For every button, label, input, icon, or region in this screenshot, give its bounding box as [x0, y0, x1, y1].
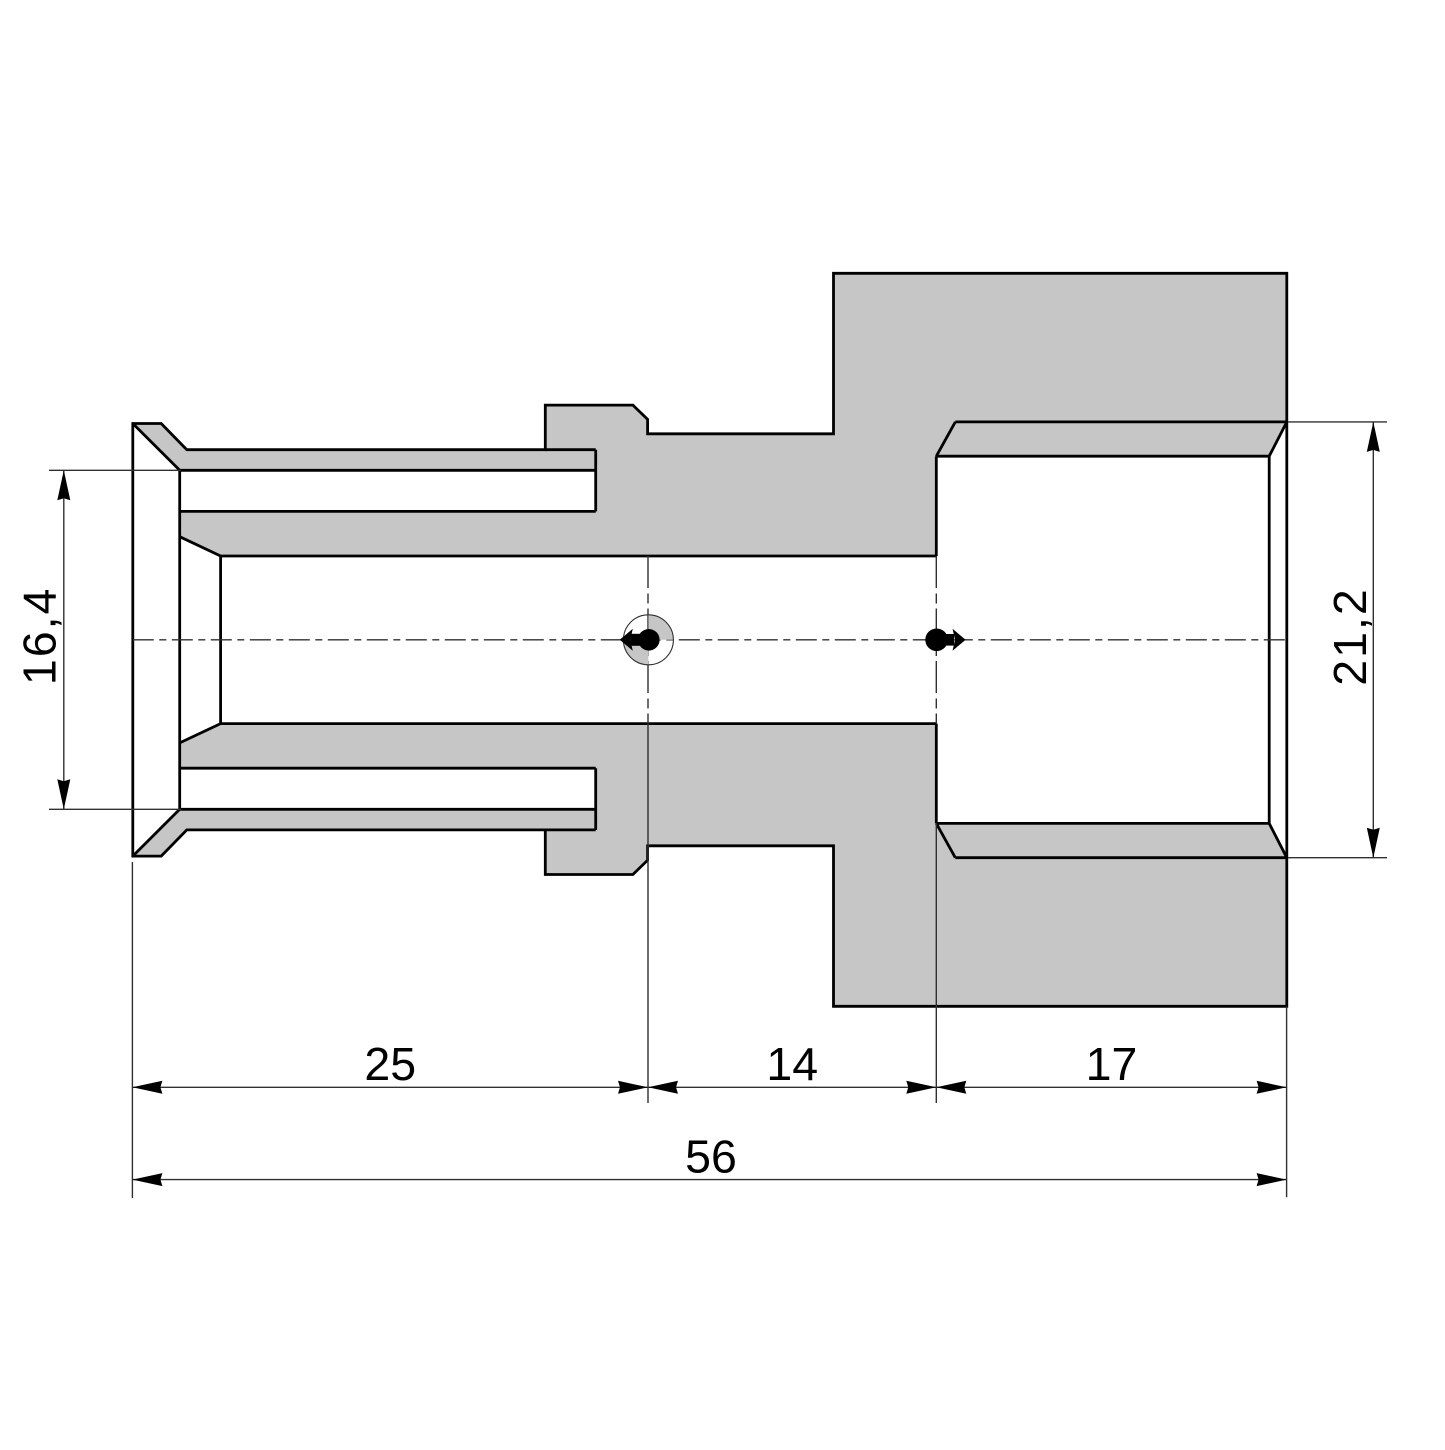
svg-text:25: 25	[364, 1038, 416, 1090]
svg-text:56: 56	[685, 1131, 737, 1183]
svg-text:16,4: 16,4	[14, 587, 66, 686]
svg-text:14: 14	[766, 1038, 818, 1090]
svg-text:17: 17	[1086, 1038, 1138, 1090]
svg-text:21,2: 21,2	[1324, 587, 1376, 686]
